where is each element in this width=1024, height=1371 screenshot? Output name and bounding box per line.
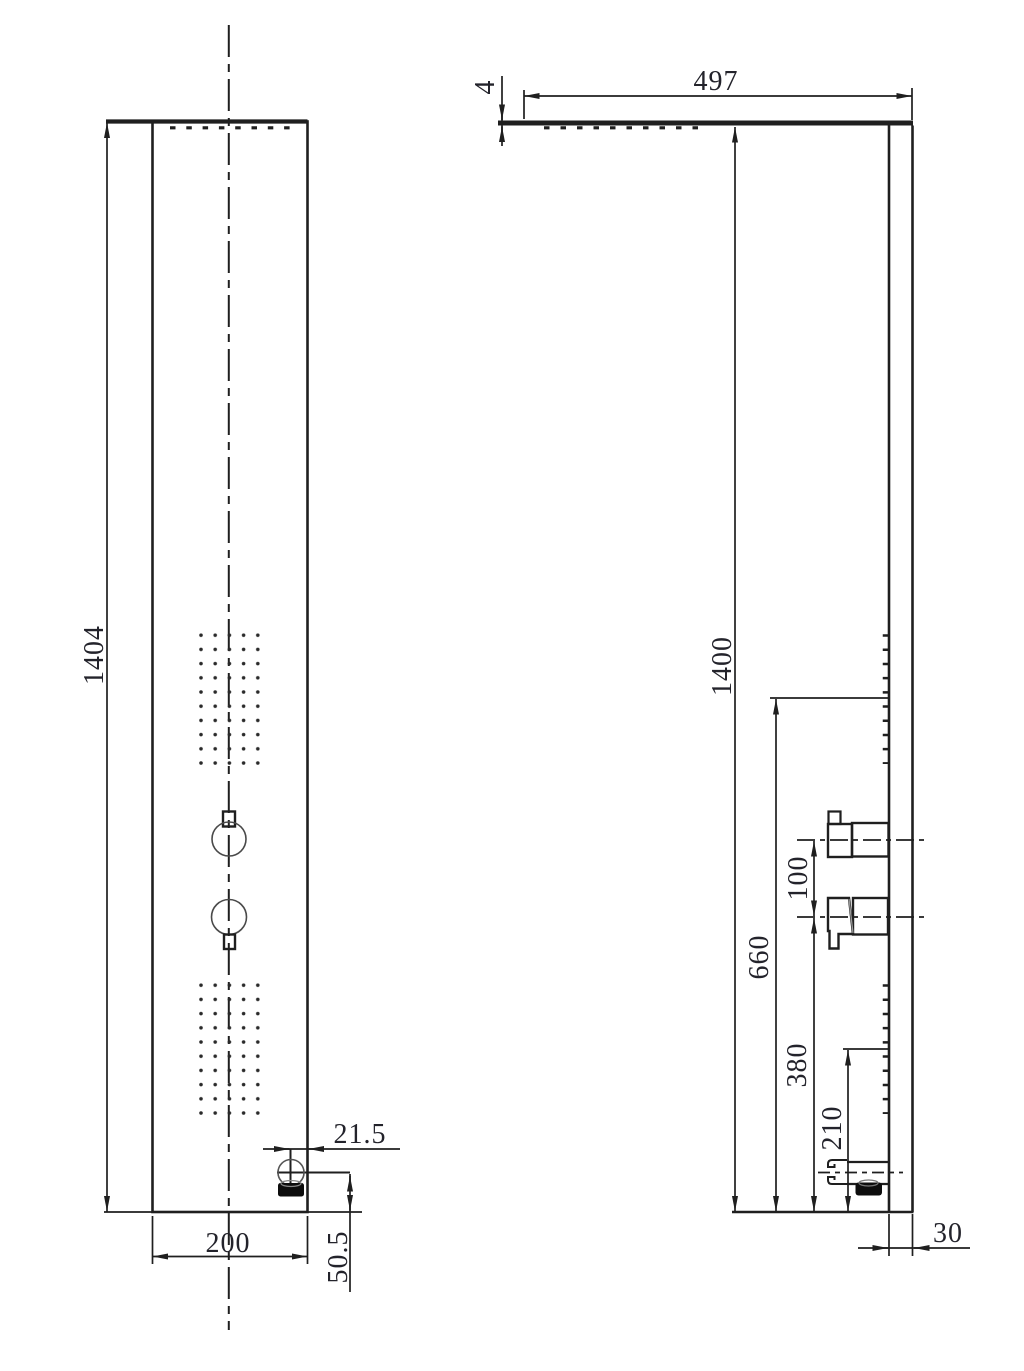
- dim-outlet-offset-value: 21.5: [334, 1119, 387, 1150]
- technical-drawing: 1404 200 21.5 50.5: [0, 0, 1024, 1371]
- dim-front-width: 200: [153, 1216, 308, 1264]
- dim-outlet-offset: 21.5: [263, 1119, 400, 1150]
- hand-shower-outlet-front: [277, 1149, 350, 1197]
- dim-lower-handle-height: 380: [782, 918, 814, 1212]
- lower-spray-grid: [199, 983, 260, 1115]
- holder-clip-bottom: [828, 1177, 847, 1184]
- dim-front-height-value: 1404: [79, 625, 110, 685]
- dim-head-thickness: 4: [470, 76, 502, 146]
- dim-panel-depth-value: 30: [933, 1218, 963, 1249]
- dim-front-height: 1404: [79, 123, 110, 1212]
- dim-head-thickness-value: 4: [470, 80, 501, 95]
- dim-head-length-value: 497: [694, 66, 739, 97]
- upper-knob-side: [797, 812, 926, 858]
- dim-side-height-value: 1400: [707, 636, 738, 696]
- technical-drawing-page: 1404 200 21.5 50.5: [0, 0, 1024, 1371]
- dim-upper-jets-center-value: 660: [744, 935, 775, 980]
- dim-lower-jets-center-value: 210: [817, 1106, 848, 1151]
- dim-front-width-value: 200: [206, 1228, 251, 1259]
- lower-knob-side: [797, 898, 926, 949]
- dim-handle-spacing-value: 100: [783, 856, 814, 901]
- dim-outlet-height-value: 50.5: [323, 1231, 354, 1284]
- side-view: 4 497: [470, 66, 970, 1256]
- dim-outlet-height: 50.5: [323, 1174, 354, 1292]
- dim-lower-handle-height-value: 380: [782, 1043, 813, 1088]
- holder-clip-top: [828, 1160, 847, 1167]
- front-view: 1404 200 21.5 50.5: [79, 25, 400, 1330]
- dim-side-height: 1400: [707, 127, 738, 1212]
- dim-handle-spacing: 100: [783, 841, 814, 916]
- dim-panel-depth: 30: [858, 1218, 970, 1249]
- upper-spray-grid: [199, 633, 260, 765]
- dim-head-length: 497: [524, 66, 912, 120]
